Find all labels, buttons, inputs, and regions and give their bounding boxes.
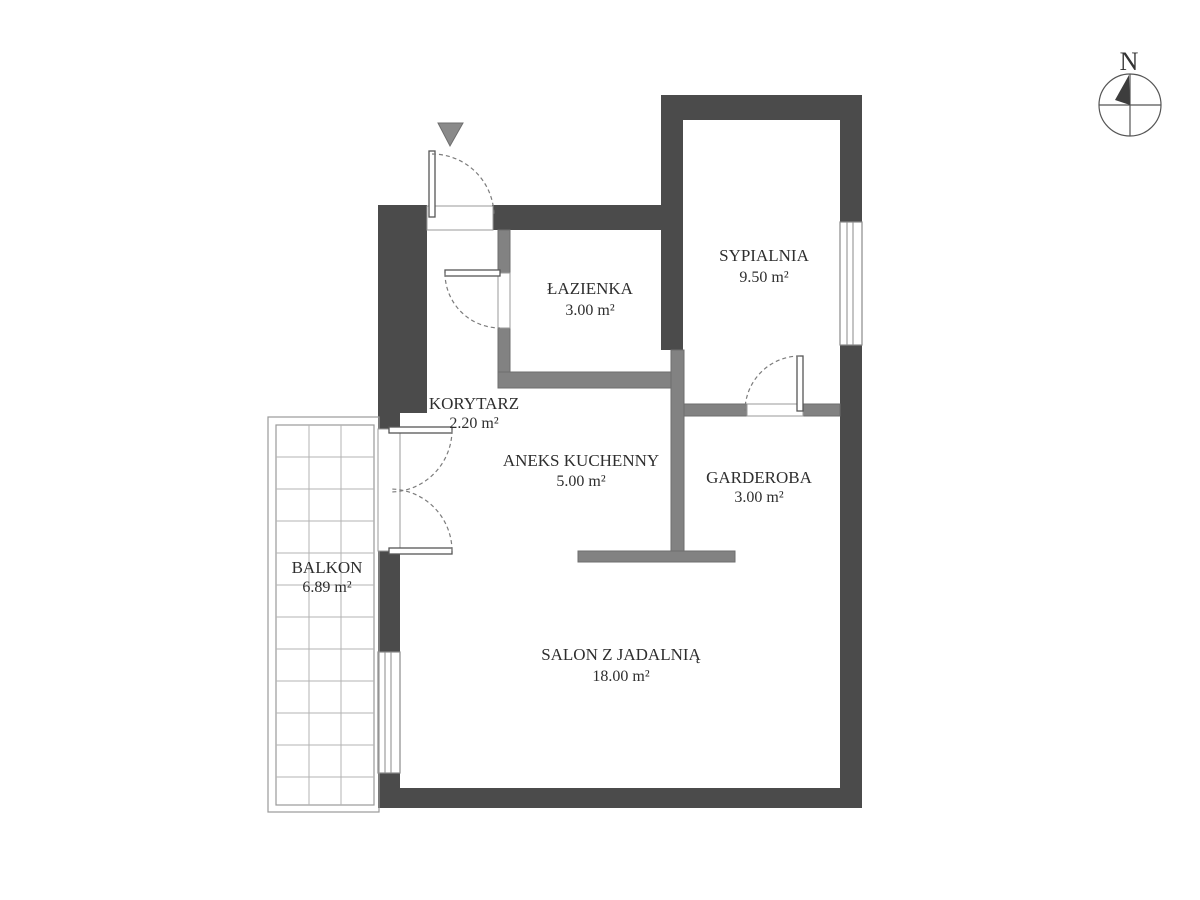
entrance-threshold (427, 206, 493, 230)
bedroom-threshold (747, 404, 803, 416)
wall-sypialnia-left (661, 95, 683, 350)
room-area-sypialnia: 9.50 m² (739, 269, 788, 286)
balcony-inner-frame (276, 425, 374, 805)
room-area-korytarz: 2.20 m² (449, 415, 498, 432)
bedroom-door-swing-arc (745, 356, 800, 411)
wall-garderoba-north-left (684, 404, 747, 416)
room-label-aneks: ANEKS KUCHENNY (503, 451, 659, 470)
wall-korytarz-top (492, 205, 661, 230)
wall-bottom (378, 788, 862, 808)
room-area-balkon: 6.89 m² (302, 579, 351, 596)
balcony-door-leaf-top (389, 427, 452, 433)
window-salon (378, 652, 400, 773)
balcony-outer-frame (268, 417, 379, 812)
room-area-aneks: 5.00 m² (556, 473, 605, 490)
balcony (268, 417, 379, 812)
room-label-balkon: BALKON (292, 558, 363, 577)
room-label-lazienka: ŁAZIENKA (547, 279, 634, 298)
wall-right-upper (840, 120, 862, 222)
entrance-arrow-icon (438, 123, 463, 146)
floor-plan-canvas: SYPIALNIA 9.50 m² ŁAZIENKA 3.00 m² KORYT… (0, 0, 1200, 900)
room-area-lazienka: 3.00 m² (565, 302, 614, 319)
room-label-sypialnia: SYPIALNIA (719, 246, 809, 265)
room-area-garderoba: 3.00 m² (734, 489, 783, 506)
wall-garderoba-north-right (803, 404, 840, 416)
wall-left-mid (378, 551, 400, 652)
bathroom-door-swing-arc (445, 273, 500, 328)
wall-right-lower (840, 345, 862, 788)
wall-korytarz-left (378, 205, 427, 413)
room-label-korytarz: KORYTARZ (429, 394, 519, 413)
room-area-salon: 18.00 m² (592, 668, 649, 685)
wall-kitchen-peninsula (578, 551, 735, 562)
wall-sypialnia-top (661, 95, 862, 120)
balcony-door-threshold (378, 429, 400, 551)
room-label-salon: SALON Z JADALNIĄ (541, 645, 701, 664)
compass: N (1099, 47, 1161, 136)
floor-plan-svg: SYPIALNIA 9.50 m² ŁAZIENKA 3.00 m² KORYT… (0, 0, 1200, 900)
compass-north-label: N (1120, 47, 1139, 76)
room-labels: SYPIALNIA 9.50 m² ŁAZIENKA 3.00 m² KORYT… (292, 246, 813, 685)
bathroom-threshold (498, 273, 510, 328)
balcony-door-leaf-bottom (389, 548, 452, 554)
compass-needle-icon (1115, 75, 1130, 105)
wall-lazienka-south (498, 372, 672, 388)
balcony-grid (276, 425, 374, 805)
bedroom-door-leaf (797, 356, 803, 411)
wall-divider-vertical (671, 350, 684, 552)
windows (378, 222, 862, 773)
wall-left-stub-lower (378, 773, 400, 788)
entrance-door-leaf (429, 151, 435, 217)
bathroom-door-leaf (445, 270, 500, 276)
wall-lazienka-west-upper (498, 230, 510, 273)
window-sypialnia (840, 222, 862, 345)
room-label-garderoba: GARDEROBA (706, 468, 813, 487)
